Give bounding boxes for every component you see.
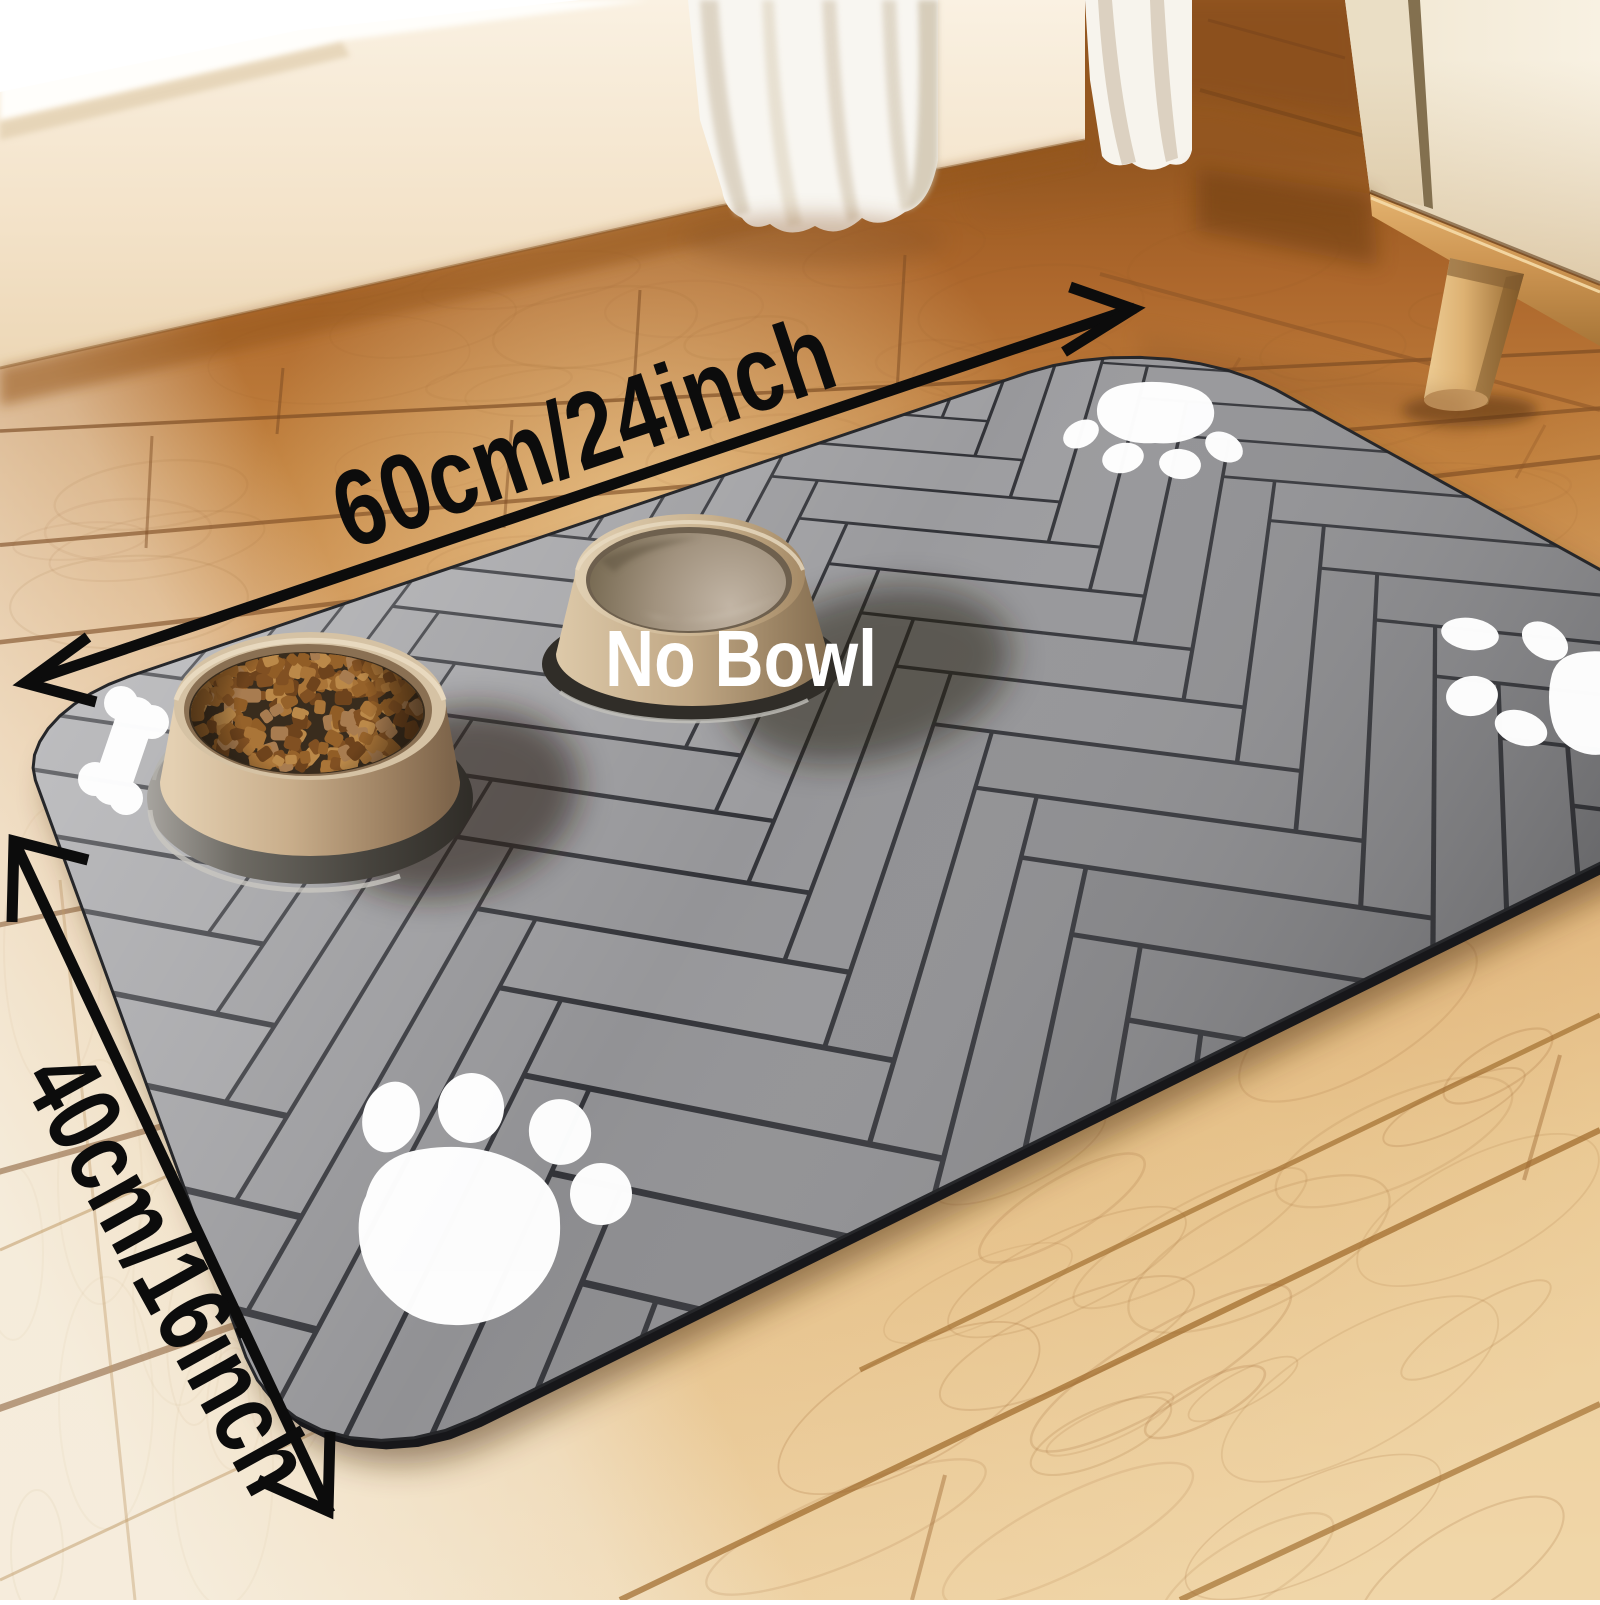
svg-text:No Bowl: No Bowl xyxy=(605,614,877,703)
